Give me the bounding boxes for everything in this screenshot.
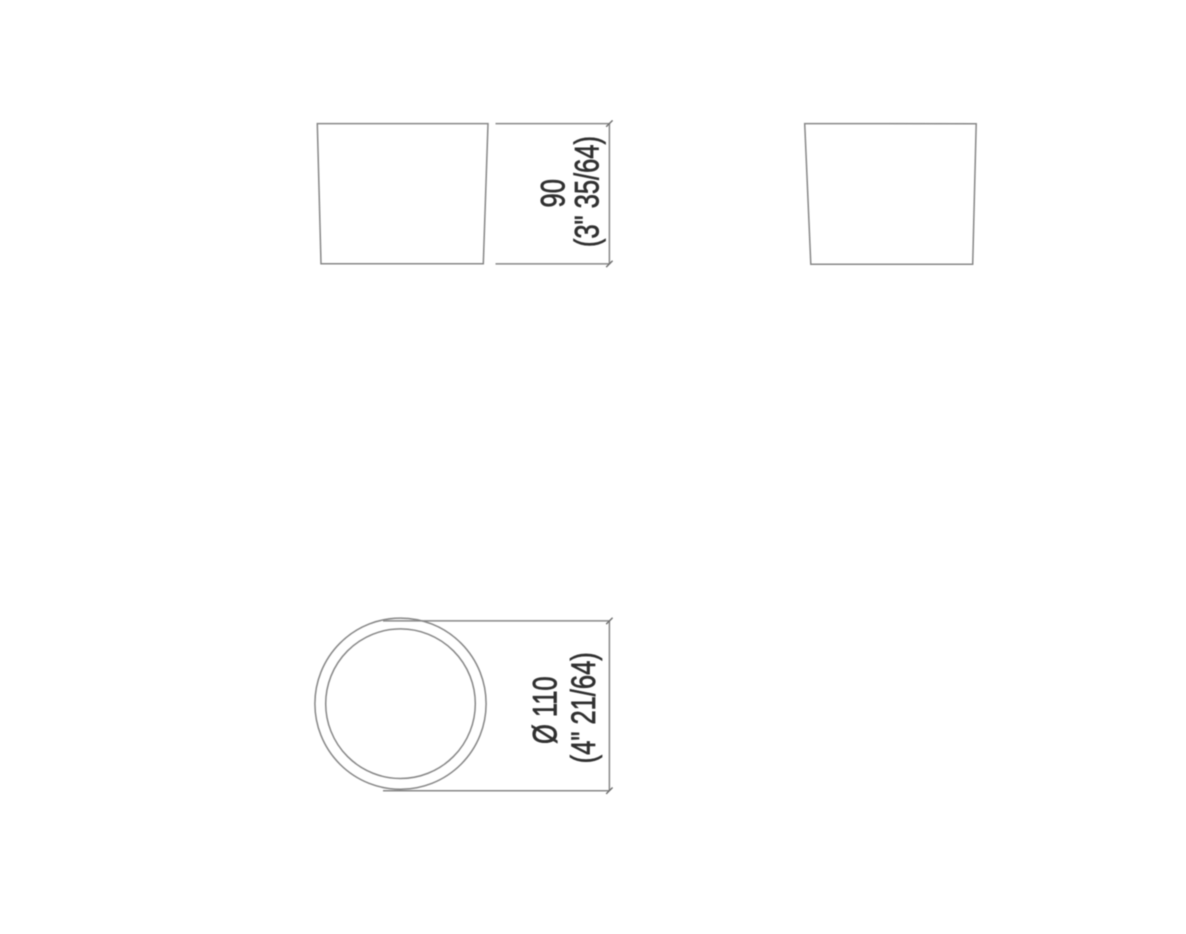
svg-text:90: 90 [535, 179, 572, 207]
svg-text:Ø 110: Ø 110 [527, 676, 564, 744]
svg-text:(4" 21/64): (4" 21/64) [566, 652, 603, 763]
svg-text:(3" 35/64): (3" 35/64) [569, 136, 606, 247]
